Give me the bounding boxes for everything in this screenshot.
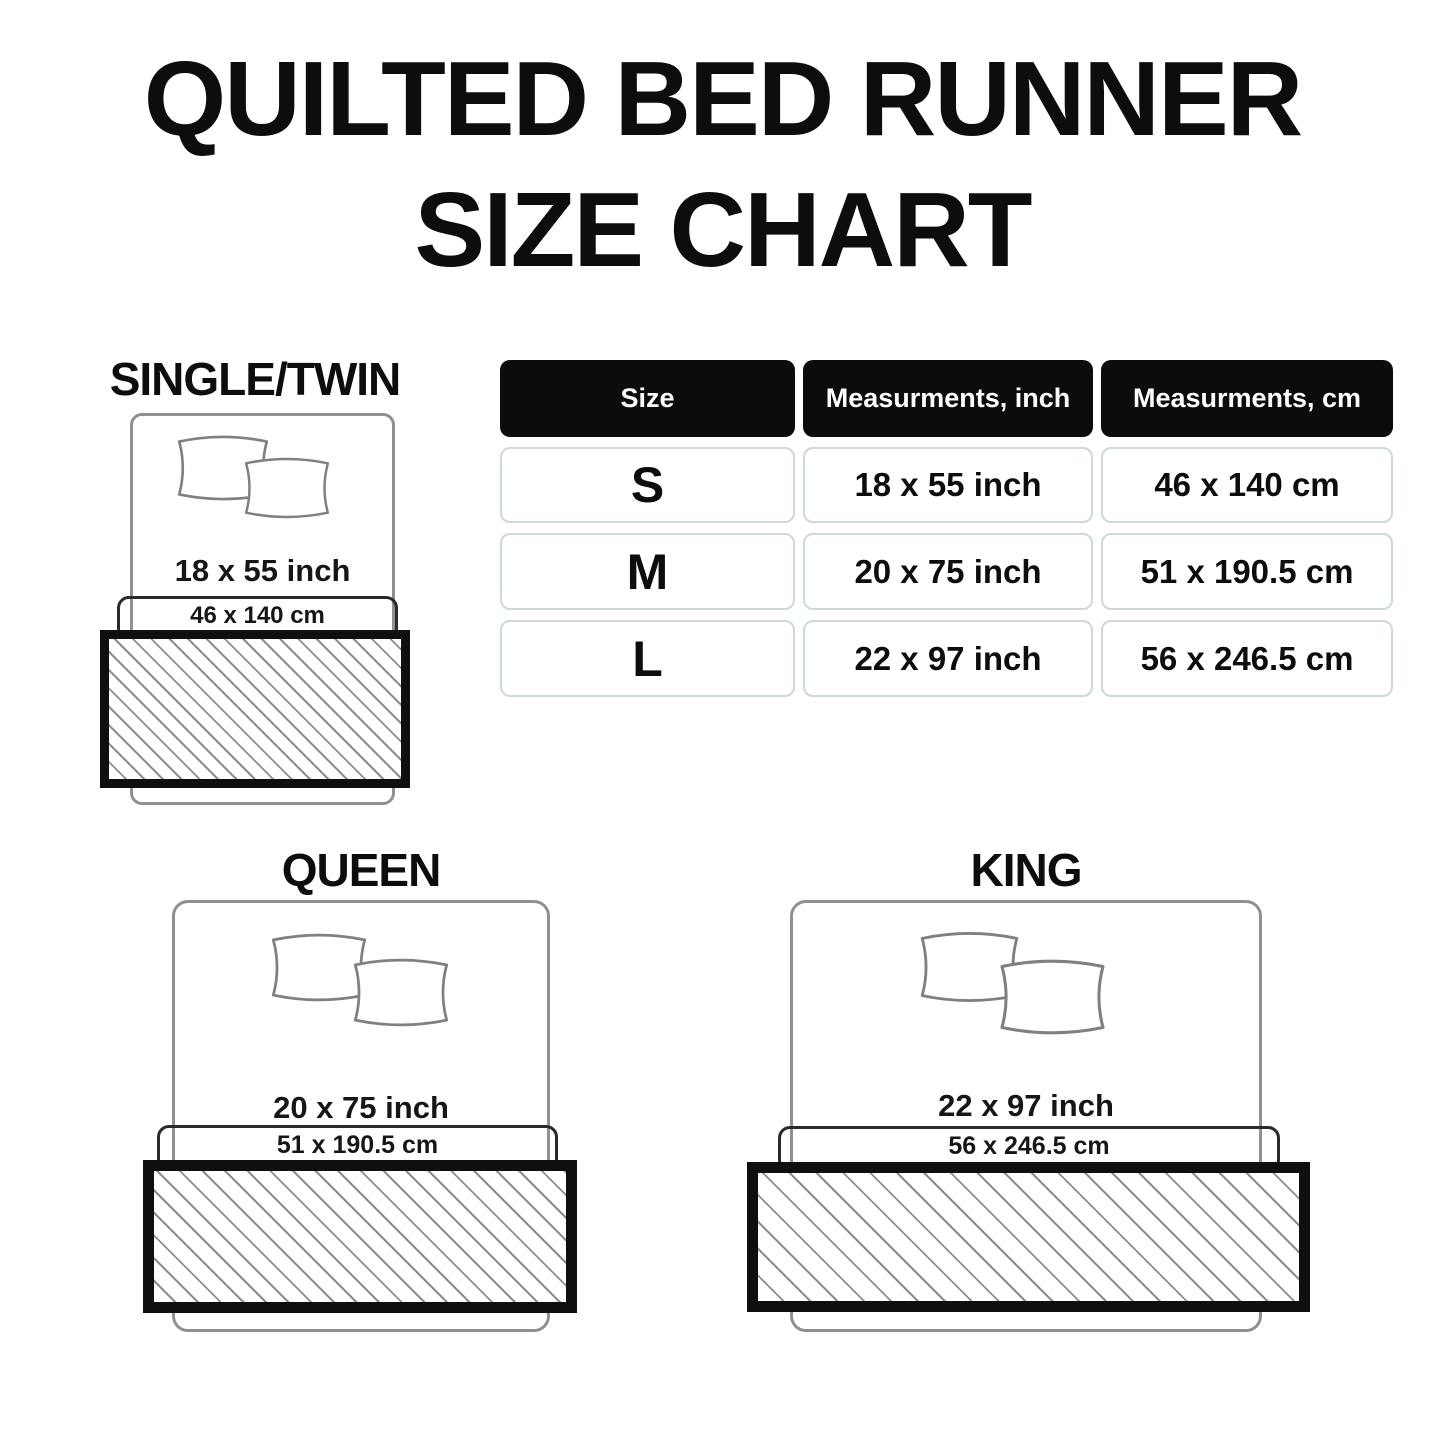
pillow-icon	[338, 950, 464, 1035]
page-title-line2: SIZE CHART	[0, 165, 1445, 296]
size-table: Size Measurments, inch Measurments, cm S…	[500, 360, 1393, 697]
king-cm-size: 56 x 246.5 cm	[781, 1129, 1277, 1161]
table-cell-s-inch: 18 x 55 inch	[803, 447, 1093, 523]
queen-cm-size: 51 x 190.5 cm	[160, 1128, 555, 1160]
single-twin-cm-size: 46 x 140 cm	[120, 599, 395, 630]
king-inch-size: 22 x 97 inch	[790, 1088, 1262, 1124]
queen-inch-size: 20 x 75 inch	[172, 1090, 550, 1126]
page-title-line1: QUILTED BED RUNNER	[0, 34, 1445, 165]
table-cell-m-cm: 51 x 190.5 cm	[1101, 533, 1393, 610]
pillow-icon	[985, 950, 1120, 1044]
single-twin-inch-size: 18 x 55 inch	[130, 553, 395, 589]
table-cell-l-cm: 56 x 246.5 cm	[1101, 620, 1393, 697]
table-cell-l-size: L	[500, 620, 795, 697]
table-cell-s-size: S	[500, 447, 795, 523]
table-cell-m-size: M	[500, 533, 795, 610]
quilted-bed-runner-size-chart: QUILTED BED RUNNER SIZE CHART SINGLE/TWI…	[0, 0, 1445, 1445]
table-cell-l-inch: 22 x 97 inch	[803, 620, 1093, 697]
single-twin-runner-hatch	[100, 630, 410, 788]
table-header-size: Size	[500, 360, 795, 437]
queen-runner-hatch	[143, 1160, 577, 1313]
table-header-inch: Measurments, inch	[803, 360, 1093, 437]
table-header-cm: Measurments, cm	[1101, 360, 1393, 437]
pillow-icon	[231, 450, 343, 526]
single-twin-label: SINGLE/TWIN	[95, 352, 415, 406]
king-runner-hatch	[747, 1162, 1310, 1312]
page-title: QUILTED BED RUNNER SIZE CHART	[0, 34, 1445, 296]
table-cell-m-inch: 20 x 75 inch	[803, 533, 1093, 610]
queen-label: QUEEN	[172, 843, 550, 897]
table-cell-s-cm: 46 x 140 cm	[1101, 447, 1393, 523]
king-label: KING	[790, 843, 1262, 897]
